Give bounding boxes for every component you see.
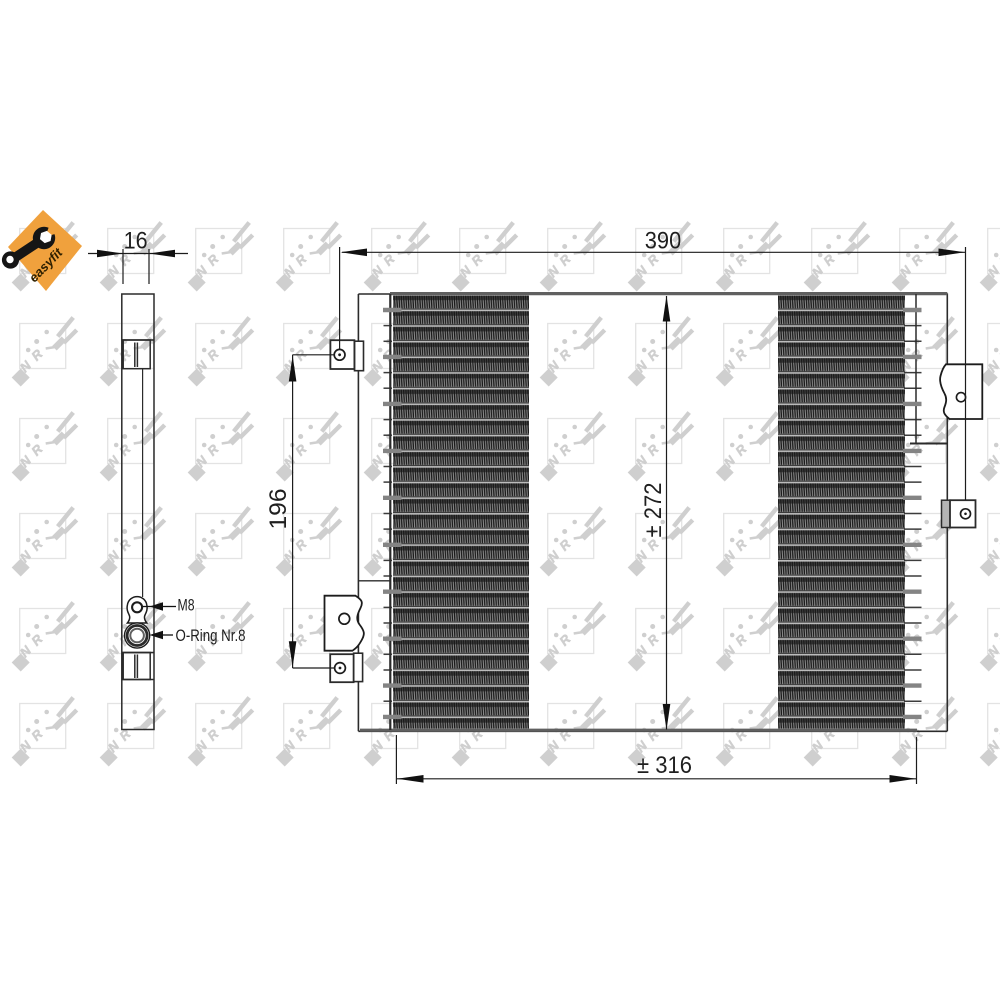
- svg-text:± 316: ± 316: [637, 752, 692, 779]
- svg-text:196: 196: [265, 489, 292, 530]
- svg-text:O-Ring Nr.8: O-Ring Nr.8: [176, 627, 246, 645]
- svg-text:M8: M8: [178, 597, 195, 615]
- svg-text:390: 390: [645, 228, 682, 255]
- svg-text:± 272: ± 272: [640, 483, 667, 538]
- svg-text:16: 16: [124, 228, 148, 255]
